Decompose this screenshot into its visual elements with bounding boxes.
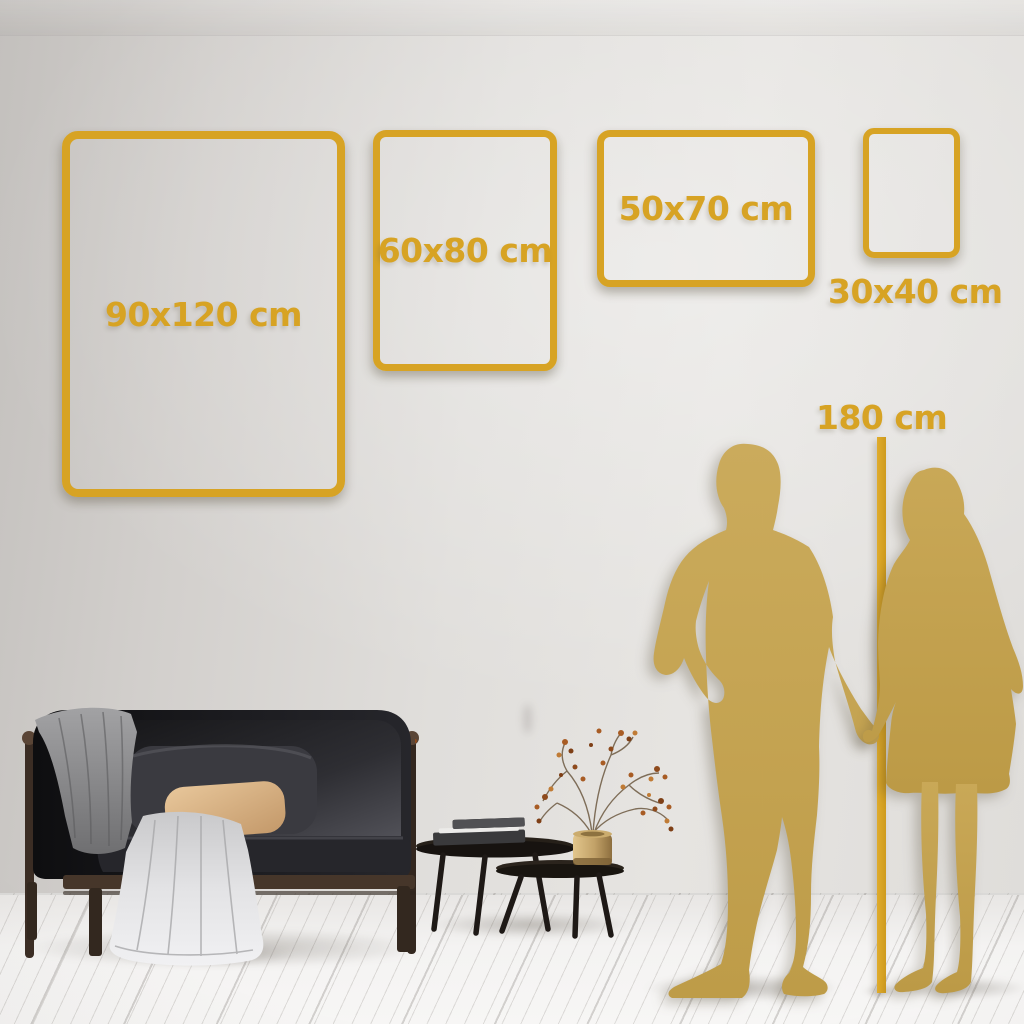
size-label-90x120: 90x120 cm — [105, 295, 302, 334]
size-label-30x40-wrap: 30x40 cm — [828, 272, 998, 311]
size-frame-60x80: 60x80 cm — [373, 130, 557, 371]
size-label-60x80: 60x80 cm — [378, 231, 553, 270]
size-frame-50x70: 50x70 cm — [597, 130, 815, 287]
height-label-wrap: 180 cm — [816, 398, 938, 437]
size-label-50x70: 50x70 cm — [619, 189, 794, 228]
man-silhouette — [645, 437, 885, 1002]
height-label: 180 cm — [816, 398, 947, 437]
ceiling-line — [0, 0, 1024, 36]
size-guide-mockup: 90x120 cm 60x80 cm 50x70 cm 30x40 cm 180… — [0, 0, 1024, 1024]
size-label-30x40: 30x40 cm — [828, 272, 1003, 311]
sofa-illustration — [15, 698, 427, 968]
coffee-table-low — [496, 860, 624, 936]
stacked-books — [433, 817, 526, 845]
coffee-table-tall — [416, 837, 574, 934]
size-frame-30x40 — [863, 128, 960, 258]
size-frame-90x120: 90x120 cm — [62, 131, 345, 497]
brass-vase — [573, 830, 612, 865]
woman-silhouette — [856, 462, 1024, 994]
